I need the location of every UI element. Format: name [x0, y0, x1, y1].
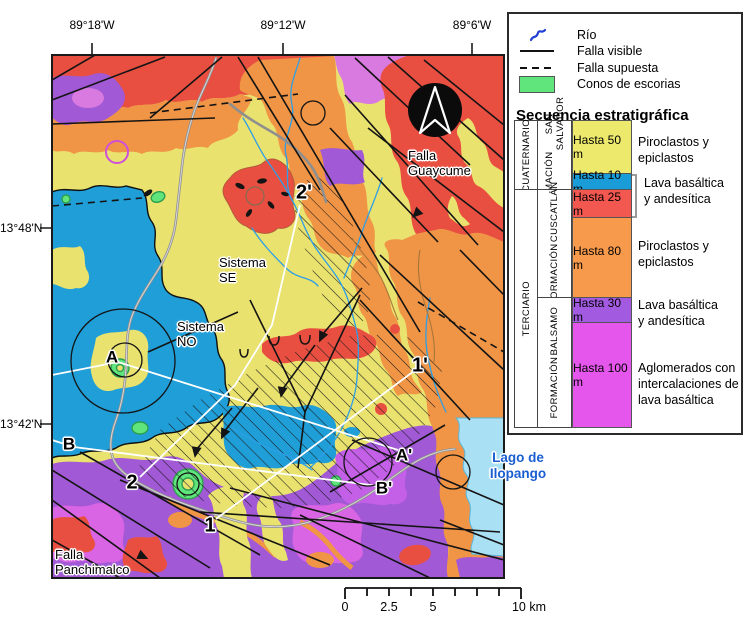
scale-label-10km: 10 km: [512, 600, 546, 614]
falla-supuesta-icon: [519, 60, 555, 76]
stratigraphic-table: CUATERNARIO TERCIARIO FORMACIÓNSAN SALVA…: [514, 120, 740, 428]
lat-label-1: 13°48'N: [0, 221, 38, 235]
profile-point-1: 1: [204, 519, 215, 534]
label-lago-ilopango: Lago deIlopango: [490, 450, 546, 482]
conos-de-escorias-swatch: [519, 76, 555, 93]
legend-panel: Río Falla visible Falla supuesta Conos d…: [507, 12, 743, 435]
profile-point-a: A: [106, 350, 118, 365]
era-cuaternario: CUATERNARIO: [514, 120, 538, 190]
label-falla-guaycume: FallaGuaycume: [408, 148, 471, 178]
lon-label-1: 89°18'W: [69, 18, 114, 32]
desc-aglomerados: Aglomerados conintercalaciones delava ba…: [638, 360, 739, 408]
desc-lava-balsamo: Lava basálticay andesítica: [638, 297, 718, 329]
legend-item-falla-visible: Falla visible: [519, 42, 642, 60]
scale-label-0: 0: [342, 600, 349, 614]
desc-lava-shared: Lava basálticay andesítica: [644, 175, 724, 207]
label-falla-panchimalco: FallaPanchimalco: [55, 547, 129, 577]
desc-piroclastos-2: Piroclastos yepiclastos: [638, 238, 709, 270]
scale-label-25: 2.5: [380, 600, 397, 614]
scale-bar: [345, 588, 521, 599]
label-sistema-se: SistemaSE: [219, 255, 266, 285]
formation-san-salvador: FORMACIÓNSAN SALVADOR: [537, 120, 572, 190]
legend-item-conos: Conos de escorias: [519, 75, 681, 93]
falla-visible-icon: [519, 43, 555, 59]
shared-desc-bracket: [632, 174, 637, 218]
profile-point-2-prime: 2': [296, 186, 312, 201]
unit-purple: Hasta 30 m: [572, 297, 632, 323]
unit-yellow: Hasta 50 m: [572, 120, 632, 174]
profile-point-b: B: [63, 437, 75, 452]
profile-point-a-prime: A': [396, 448, 412, 463]
rio-icon: [519, 27, 555, 43]
label-sistema-no: SistemaNO: [177, 319, 224, 349]
era-terciario: TERCIARIO: [514, 189, 538, 428]
profile-point-1-prime: 1': [412, 359, 428, 374]
lat-label-2: 13°42'N: [0, 417, 38, 431]
lon-label-2: 89°12'W: [260, 18, 305, 32]
lon-label-3: 89°6'W: [453, 18, 491, 32]
scale-label-5: 5: [430, 600, 437, 614]
desc-piroclastos-1: Piroclastos yepiclastos: [638, 134, 709, 166]
geologic-map-figure: 89°18'W 89°12'W 89°6'W 13°48'N 13°42'N F…: [0, 0, 750, 619]
unit-orange: Hasta 80 m: [572, 217, 632, 298]
formation-cuscatlan: FORMACIÓNCUSCATLÁN: [537, 189, 572, 298]
unit-magenta: Hasta 100 m: [572, 322, 632, 428]
formation-balsamo: FORMACIÓNBALSAMO: [537, 297, 572, 428]
unit-red: Hasta 25 m: [572, 189, 632, 218]
unit-blue: Hasta 10 m: [572, 173, 632, 190]
profile-point-2: 2: [126, 476, 137, 491]
profile-point-b-prime: B': [376, 481, 392, 496]
north-arrow-icon: [408, 83, 462, 137]
